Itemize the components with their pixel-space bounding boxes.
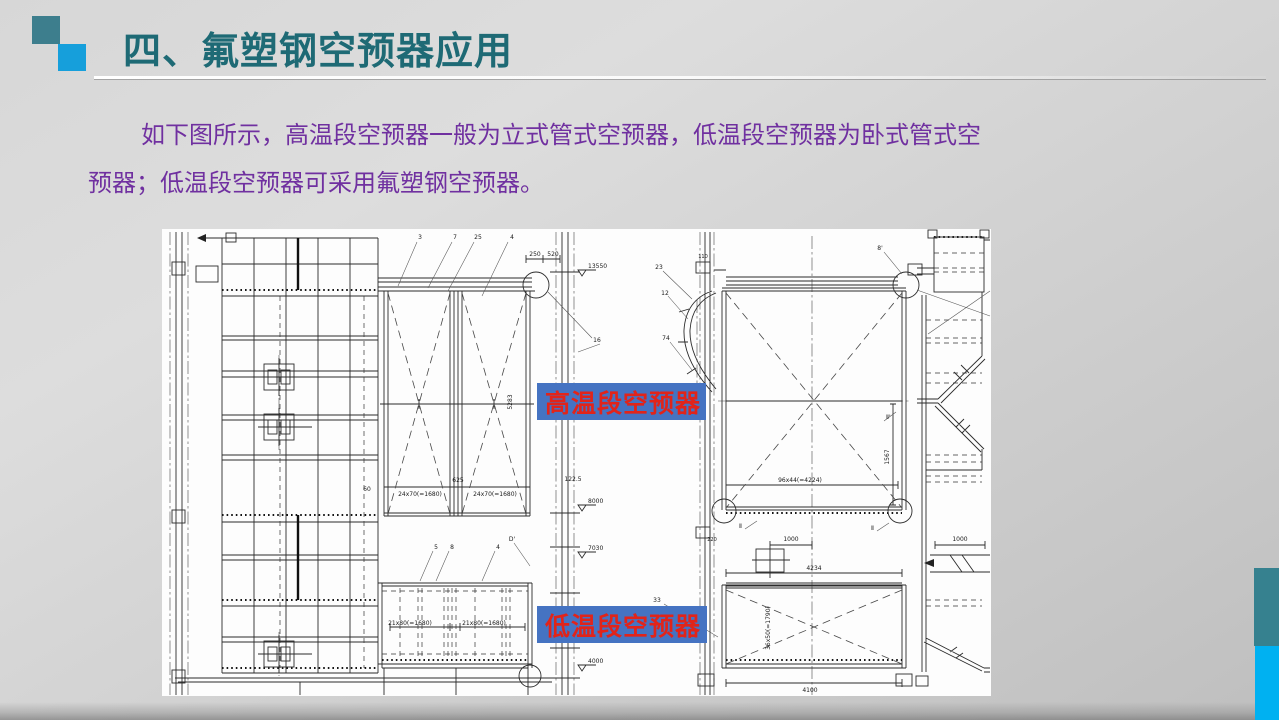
accent-square-dark-icon [32, 16, 60, 44]
svg-text:Ⅱ: Ⅱ [739, 523, 742, 530]
accent-square-light-icon [58, 44, 86, 71]
svg-text:25: 25 [474, 234, 482, 241]
svg-text:1000: 1000 [783, 536, 798, 543]
svg-text:24x70(=1680): 24x70(=1680) [398, 491, 442, 498]
title-divider-line [94, 76, 1266, 79]
svg-text:8000: 8000 [588, 498, 603, 505]
svg-text:21x80(=1680): 21x80(=1680) [462, 620, 506, 627]
svg-text:12: 12 [661, 290, 669, 297]
svg-text:23: 23 [655, 264, 663, 271]
svg-text:60: 60 [363, 486, 371, 493]
svg-text:4234: 4234 [806, 565, 821, 572]
leader-lines [398, 242, 990, 637]
flange-rows [222, 237, 984, 668]
svg-text:7030: 7030 [588, 545, 603, 552]
right-edge-teal-bar [1254, 568, 1279, 646]
svg-text:24x70(=1680): 24x70(=1680) [473, 491, 517, 498]
svg-text:5: 5 [434, 544, 438, 551]
svg-text:36x50(=1790): 36x50(=1790) [765, 606, 772, 650]
svg-text:96x44(=4224): 96x44(=4224) [778, 477, 822, 484]
svg-text:220: 220 [707, 537, 717, 543]
svg-text:250: 250 [529, 251, 541, 258]
svg-text:D': D' [509, 536, 516, 543]
svg-text:3: 3 [418, 234, 422, 241]
label-high-temp-air-preheater: 高温段空预器 [537, 383, 706, 420]
svg-text:33: 33 [653, 597, 661, 604]
svg-text:4000: 4000 [588, 658, 603, 665]
right-edge-blue-bar [1255, 646, 1279, 720]
svg-text:Ⅱ: Ⅱ [871, 525, 874, 532]
svg-text:21x80(=1680): 21x80(=1680) [388, 620, 432, 627]
svg-text:4100: 4100 [802, 687, 817, 694]
svg-text:122.5: 122.5 [564, 476, 581, 483]
presentation-slide: 四、氟塑钢空预器应用 如下图所示，高温段空预器一般为立式管式空预器，低温段空预器… [0, 0, 1279, 720]
svg-text:16: 16 [593, 337, 601, 344]
svg-text:8': 8' [877, 245, 883, 252]
body-text-line-1: 如下图所示，高温段空预器一般为立式管式空预器，低温段空预器为卧式管式空 [141, 115, 981, 150]
body-text-line-2: 预器；低温段空预器可采用氟塑钢空预器。 [88, 163, 544, 198]
svg-text:520: 520 [547, 251, 559, 258]
svg-text:625: 625 [452, 477, 464, 484]
svg-text:4: 4 [510, 234, 514, 241]
svg-text:1567: 1567 [884, 449, 891, 464]
svg-text:7: 7 [453, 234, 457, 241]
svg-text:5283: 5283 [507, 394, 514, 409]
slide-title: 四、氟塑钢空预器应用 [123, 20, 513, 75]
svg-text:1000: 1000 [952, 536, 967, 543]
svg-text:8: 8 [450, 544, 454, 551]
svg-text:110: 110 [698, 254, 708, 260]
svg-text:Ⅱ': Ⅱ' [886, 414, 891, 421]
svg-text:13550: 13550 [588, 263, 607, 270]
bottom-gradient-strip [0, 702, 1279, 720]
label-low-temp-air-preheater: 低温段空预器 [537, 606, 707, 643]
svg-text:74: 74 [662, 335, 670, 342]
svg-text:4: 4 [496, 544, 500, 551]
